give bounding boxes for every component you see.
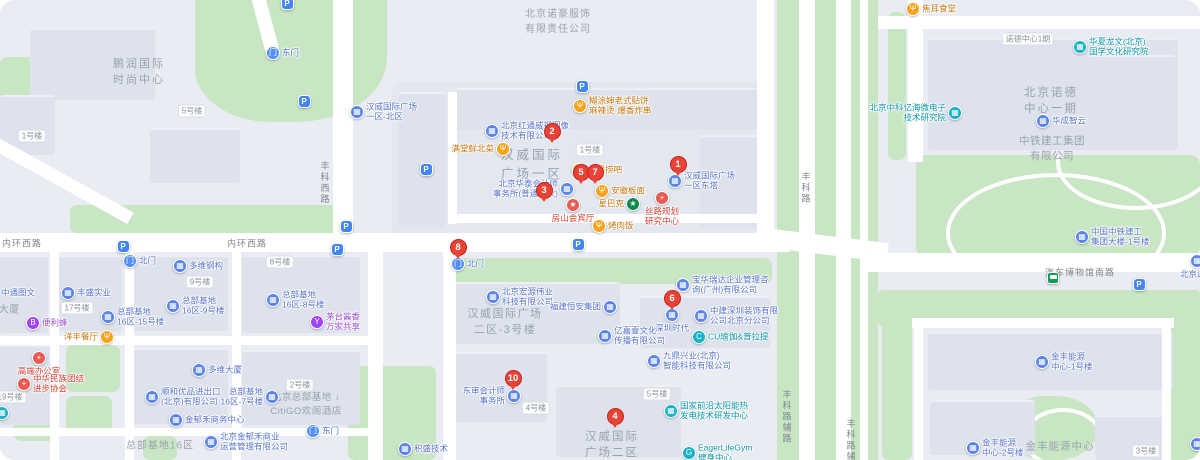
parking-icon[interactable]: P — [331, 243, 344, 256]
poi-label: 华成智云 — [1052, 116, 1086, 126]
company-building-icon: ▦ — [560, 182, 574, 196]
road-label: 内环西路 — [227, 237, 267, 250]
building-number-tag: 17号楼 — [61, 302, 94, 315]
parking-icon[interactable]: P — [420, 163, 433, 176]
red-cross-icon: + — [17, 377, 31, 391]
poi-layer: 鹏润国际时尚中心北京诺豪服饰有限责任公司汉威国际广场一区汉威国际广场二区-3号楼… — [0, 0, 1200, 460]
institute-icon: ▦ — [948, 106, 962, 120]
poi-label: 烤肉饭 — [608, 221, 634, 231]
building-number-tag: 诺德中心1期 — [1002, 33, 1054, 46]
numbered-marker-8[interactable]: 8 — [450, 239, 467, 256]
district-label: 北京诺豪服饰有限责任公司 — [525, 5, 591, 35]
district-label: 汉威国际广场二区 — [585, 428, 639, 460]
district-label: 总部基地16区 — [126, 437, 194, 452]
liquor-icon: Y — [310, 315, 324, 329]
poi-label: CU瑜伽&普拉提 — [708, 332, 768, 342]
road-label: 丰科路 — [800, 172, 813, 205]
numbered-marker-10[interactable]: 10 — [505, 370, 522, 387]
gate-icon: 门 — [306, 424, 320, 438]
restaurant-icon: Ψ — [573, 99, 587, 113]
building-number-tag: 5号楼 — [178, 105, 206, 118]
road-label: 丰科西路 — [319, 161, 332, 205]
parking-icon[interactable]: P — [281, 0, 294, 10]
poi-label: 房山会宾厅 — [552, 214, 595, 224]
poi-label: 北门 — [467, 259, 484, 269]
poi-label: 福建恒安集团 — [550, 302, 601, 312]
gate-icon: 门 — [266, 46, 280, 60]
poi-label: 九鼎兴业(北京)智能科技有限公司 — [663, 352, 731, 371]
road-label: 内环西路 — [2, 237, 42, 250]
gate-icon: 门 — [123, 254, 137, 268]
restaurant-icon: Ψ — [906, 2, 920, 16]
poi-label: 中建深圳装饰有限公司北京分公司 — [710, 307, 778, 326]
district-label: 中铁建工集团有限公司 — [1019, 133, 1085, 163]
company-building-icon: ▦ — [266, 293, 280, 307]
poi-label: 东门 — [282, 48, 299, 58]
company-building-icon: ▦ — [598, 329, 612, 343]
poi-label: 总部基地16区-15号楼 — [117, 308, 164, 327]
district-label: 汉威国际广场一区 — [501, 144, 563, 182]
company-building-icon: ▦ — [265, 390, 279, 404]
company-building-icon: ▦ — [101, 310, 115, 324]
parking-icon[interactable]: P — [117, 240, 130, 253]
institute-icon: ▦ — [664, 404, 678, 418]
district-label: 北京总部基地 ↓CitiGO欢阁酒店 — [270, 389, 342, 417]
poi-label: 汉威国际广场一区-北区 — [366, 103, 417, 122]
building-number-tag: 5号楼 — [643, 388, 671, 401]
poi-label: 北门 — [139, 256, 156, 266]
company-building-icon: ▦ — [1035, 355, 1049, 369]
parking-icon[interactable]: P — [340, 220, 353, 233]
district-label: 北京诺德中心一期 — [1024, 84, 1078, 116]
poi-label: 中华民族团结进步协会 — [33, 375, 84, 394]
poi-label: 华夏龙文(北京)国学文化研究院 — [1089, 38, 1149, 57]
company-building-icon: ▦ — [1075, 230, 1089, 244]
map-canvas[interactable]: 鹏润国际时尚中心北京诺豪服饰有限责任公司汉威国际广场一区汉威国际广场二区-3号楼… — [0, 0, 1200, 460]
institute-icon: ▦ — [0, 406, 9, 420]
poi-label: 多维钢构 — [189, 261, 223, 271]
poi-label: 金丰能源中心-2号楼 — [982, 439, 1024, 458]
institute-icon: ▦ — [1073, 40, 1087, 54]
poi-label: 总部基地16区-9号楼 — [182, 297, 225, 316]
district-label: 恒大厦 — [0, 301, 20, 316]
building-number-tag: 3号楼 — [1132, 445, 1160, 458]
company-building-icon: ▦ — [166, 299, 180, 313]
poi-label: 多维大厦 — [208, 365, 242, 375]
poi-label: 丰盛实业 — [77, 288, 111, 298]
poi-label: 总部基地16区-7号楼 — [220, 388, 263, 407]
district-label: 鹏润国际时尚中心 — [113, 55, 165, 87]
poi-label: EagerLifeGym健身中心 — [698, 444, 752, 460]
poi-label: 深圳时代 — [655, 324, 689, 334]
building-number-tag: 9号楼 — [186, 276, 214, 289]
numbered-marker-1[interactable]: 1 — [670, 156, 687, 173]
poi-label: 中国中铁建工集团大楼-1号楼 — [1091, 228, 1150, 247]
numbered-marker-6[interactable]: 6 — [664, 290, 681, 307]
company-building-icon: ▦ — [350, 105, 364, 119]
poi-label: 丝路规划研究中心 — [645, 207, 679, 226]
company-building-icon: ▦ — [192, 363, 206, 377]
poi-label: 金丰能源中心-1号楼 — [1051, 353, 1093, 372]
parking-icon[interactable]: P — [298, 95, 311, 108]
poi-label: 焦耳食堂 — [922, 4, 956, 14]
company-building-icon: ▦ — [1190, 437, 1200, 451]
numbered-marker-3[interactable]: 3 — [536, 182, 553, 199]
company-building-icon: ▦ — [204, 435, 218, 449]
starbucks-icon: ★ — [626, 197, 640, 211]
company-building-icon: ▦ — [61, 286, 75, 300]
bus-stop-icon[interactable] — [1047, 272, 1059, 284]
convenience-store-icon: B — [26, 316, 40, 330]
poi-label: 安徽板面 — [611, 186, 645, 196]
poi-label: 顺和优品进出口(北京)有限公司 — [161, 388, 221, 407]
building-number-tag: 8号楼 — [266, 256, 294, 269]
poi-label: 汉威国际广场一区东塔 — [684, 172, 735, 191]
road-label: 丰科路辅路 — [781, 390, 794, 445]
company-building-icon: ▦ — [647, 354, 661, 368]
poi-label: 星巴克 — [598, 199, 624, 209]
company-building-icon: ▦ — [145, 390, 159, 404]
yoga-icon: C — [692, 330, 706, 344]
poi-label: 东审会计师事务所 — [462, 387, 505, 406]
poi-label: 积盛技术 — [414, 444, 448, 454]
company-building-icon: ▦ — [486, 290, 500, 304]
company-building-icon: ▦ — [966, 441, 980, 455]
gym-icon: G — [682, 446, 696, 460]
district-label: 汉威国际广场二区-3号楼 — [468, 305, 543, 337]
restaurant-icon: Ψ — [100, 330, 114, 344]
district-label: 金丰能源中心 — [1026, 439, 1095, 454]
company-building-icon: ▦ — [603, 300, 617, 314]
company-building-icon: ▦ — [173, 259, 187, 273]
star-icon: ★ — [566, 198, 580, 212]
company-building-icon: ▦ — [169, 413, 183, 427]
parking-icon[interactable]: P — [572, 238, 585, 251]
poi-label: 总部基地16区-8号楼 — [282, 291, 325, 310]
poi-label: 金郁禾商务中心 — [185, 415, 245, 425]
poi-label: 北京中科亿海微电子技术研究院 — [869, 104, 946, 123]
building-number-tag: 4号楼 — [522, 402, 550, 415]
poi-label: 茅台酱香万家共享 — [326, 313, 360, 332]
poi-label: 宝华瑞达企业管理咨询(广州)有限公司 — [692, 276, 769, 295]
red-cross-icon: + — [32, 351, 46, 365]
company-building-icon: ▦ — [398, 442, 412, 456]
poi-label: 糊涂婶老式贴饼麻辣烫·爆香炸串 — [589, 97, 651, 116]
numbered-marker-4[interactable]: 4 — [607, 408, 624, 425]
poi-label: 洋丰餐厅 — [64, 332, 98, 342]
parking-icon[interactable]: P — [1133, 278, 1146, 291]
red-cross-icon: + — [655, 191, 669, 205]
poi-label: 北京宏源伟业科技有限公司 — [502, 288, 553, 307]
parking-icon[interactable]: P — [576, 80, 589, 93]
numbered-marker-2[interactable]: 2 — [544, 123, 561, 140]
company-building-icon: ▦ — [694, 309, 708, 323]
poi-label: 北京金郁禾商业运营管理有限公司 — [220, 433, 288, 452]
poi-label: 便利蜂 — [42, 318, 68, 328]
poi-label: 北京诺德 — [1180, 270, 1200, 280]
poi-label: 东门 — [322, 426, 339, 436]
poi-label: 中通图文 — [1, 288, 35, 298]
building-number-tag: 1号楼 — [576, 144, 604, 157]
road-label: 丰科路辅路 — [845, 419, 858, 460]
numbered-marker-7[interactable]: 7 — [587, 164, 604, 181]
company-building-icon: ▦ — [1190, 254, 1200, 268]
company-building-icon: ▦ — [676, 278, 690, 292]
company-building-icon: ▦ — [1036, 114, 1050, 128]
poi-label: 满堂鲜北菜 — [451, 144, 494, 154]
restaurant-icon: Ψ — [592, 219, 606, 233]
restaurant-icon: Ψ — [496, 142, 510, 156]
building-number-tag: 19号楼 — [0, 391, 26, 404]
building-number-tag: 1号楼 — [18, 130, 46, 143]
company-building-icon: ▦ — [485, 124, 499, 138]
poi-label: 国家前沿太阳能热发电技术研发中心 — [680, 402, 748, 421]
